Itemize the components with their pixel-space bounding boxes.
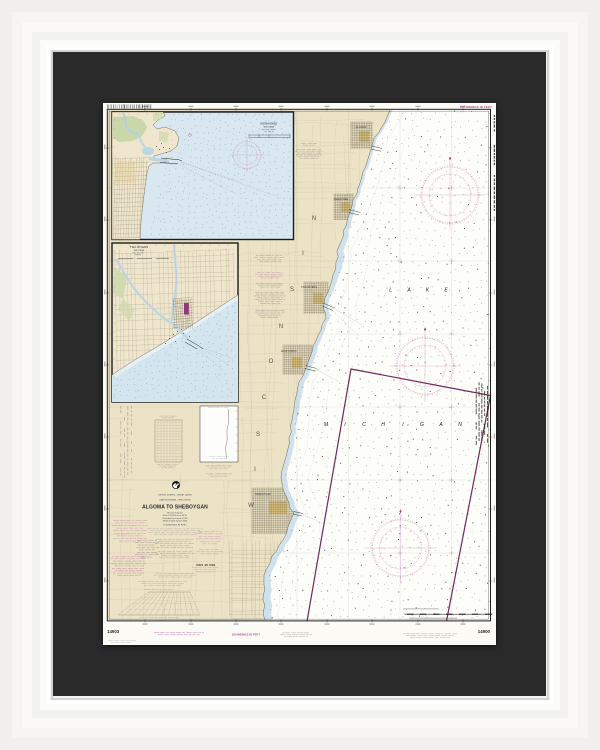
svg-text:ALGOMA TO SHEBOYGAN: ALGOMA TO SHEBOYGAN [142,505,208,511]
svg-text:KEWAUNEE: KEWAUNEE [261,122,278,126]
svg-text:L: L [389,288,392,294]
svg-text:SOUNDINGS IN FEET: SOUNDINGS IN FEET [460,105,492,109]
svg-text:14900: 14900 [478,629,491,634]
svg-text:TWO RIVERS: TWO RIVERS [130,245,148,249]
svg-text:Scale 1:120,000 at Lat. 44°15′: Scale 1:120,000 at Lat. 44°15′ [163,514,188,517]
svg-text:UNITED STATES - GREAT LAKES: UNITED STATES - GREAT LAKES [158,493,192,496]
svg-text:WISCONSIN: WISCONSIN [134,250,145,252]
svg-text:SHEBOYGAN: SHEBOYGAN [255,493,271,496]
svg-text:W: W [248,503,254,509]
svg-text:A: A [406,288,411,294]
svg-text:O: O [269,359,274,365]
svg-text:S: S [290,287,294,293]
svg-text:North American Datum of 1983: North American Datum of 1983 [163,517,188,520]
svg-text:MANITOWOC: MANITOWOC [281,350,297,353]
svg-text:KEWAUNEE: KEWAUNEE [334,198,349,201]
svg-text:S: S [256,432,260,438]
svg-text:ALGOMA: ALGOMA [356,126,367,129]
svg-text:H: H [381,422,385,428]
svg-text:DGS 46 USE: DGS 46 USE [196,563,215,567]
svg-text:N: N [458,422,462,428]
svg-text:14903: 14903 [107,629,120,634]
svg-text:A: A [438,422,443,428]
svg-text:SOUNDINGS IN FEET: SOUNDINGS IN FEET [232,632,260,636]
svg-text:SOUNDINGS IN FEET: SOUNDINGS IN FEET [163,524,187,526]
svg-text:N: N [279,324,283,330]
svg-text:C: C [362,422,366,428]
svg-text:N: N [312,216,316,222]
svg-text:(World Geodetic System 1984): (World Geodetic System 1984) [163,520,188,523]
svg-text:G: G [420,422,424,428]
svg-text:Mercator Projection: Mercator Projection [167,511,183,514]
svg-text:WISCONSIN: WISCONSIN [264,127,275,129]
svg-text:TWO RIVERS: TWO RIVERS [301,286,317,289]
svg-text:LAKE MICHIGAN - WISCONSIN: LAKE MICHIGAN - WISCONSIN [159,499,191,502]
svg-text:C: C [262,395,267,401]
